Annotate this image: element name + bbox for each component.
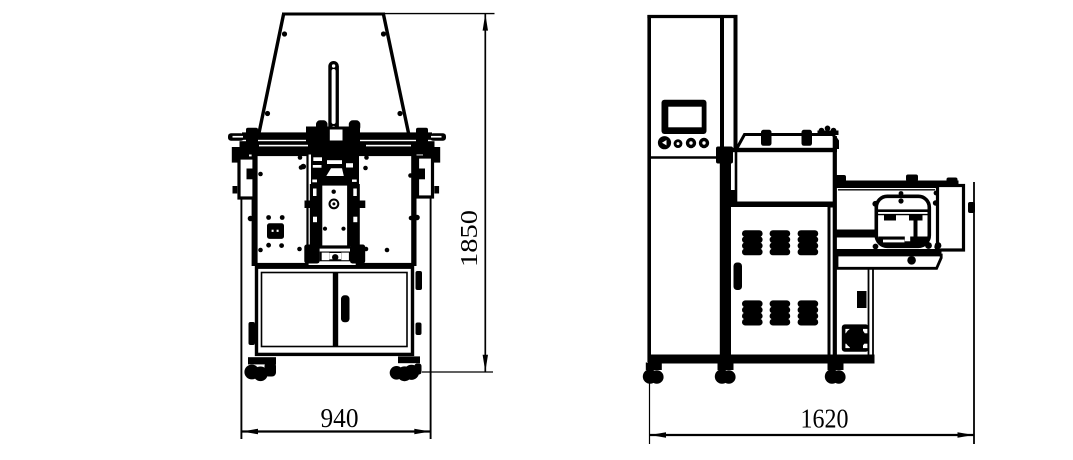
svg-text:1620: 1620 — [801, 404, 849, 434]
svg-text:940: 940 — [321, 403, 359, 433]
svg-text:1850: 1850 — [456, 210, 483, 267]
